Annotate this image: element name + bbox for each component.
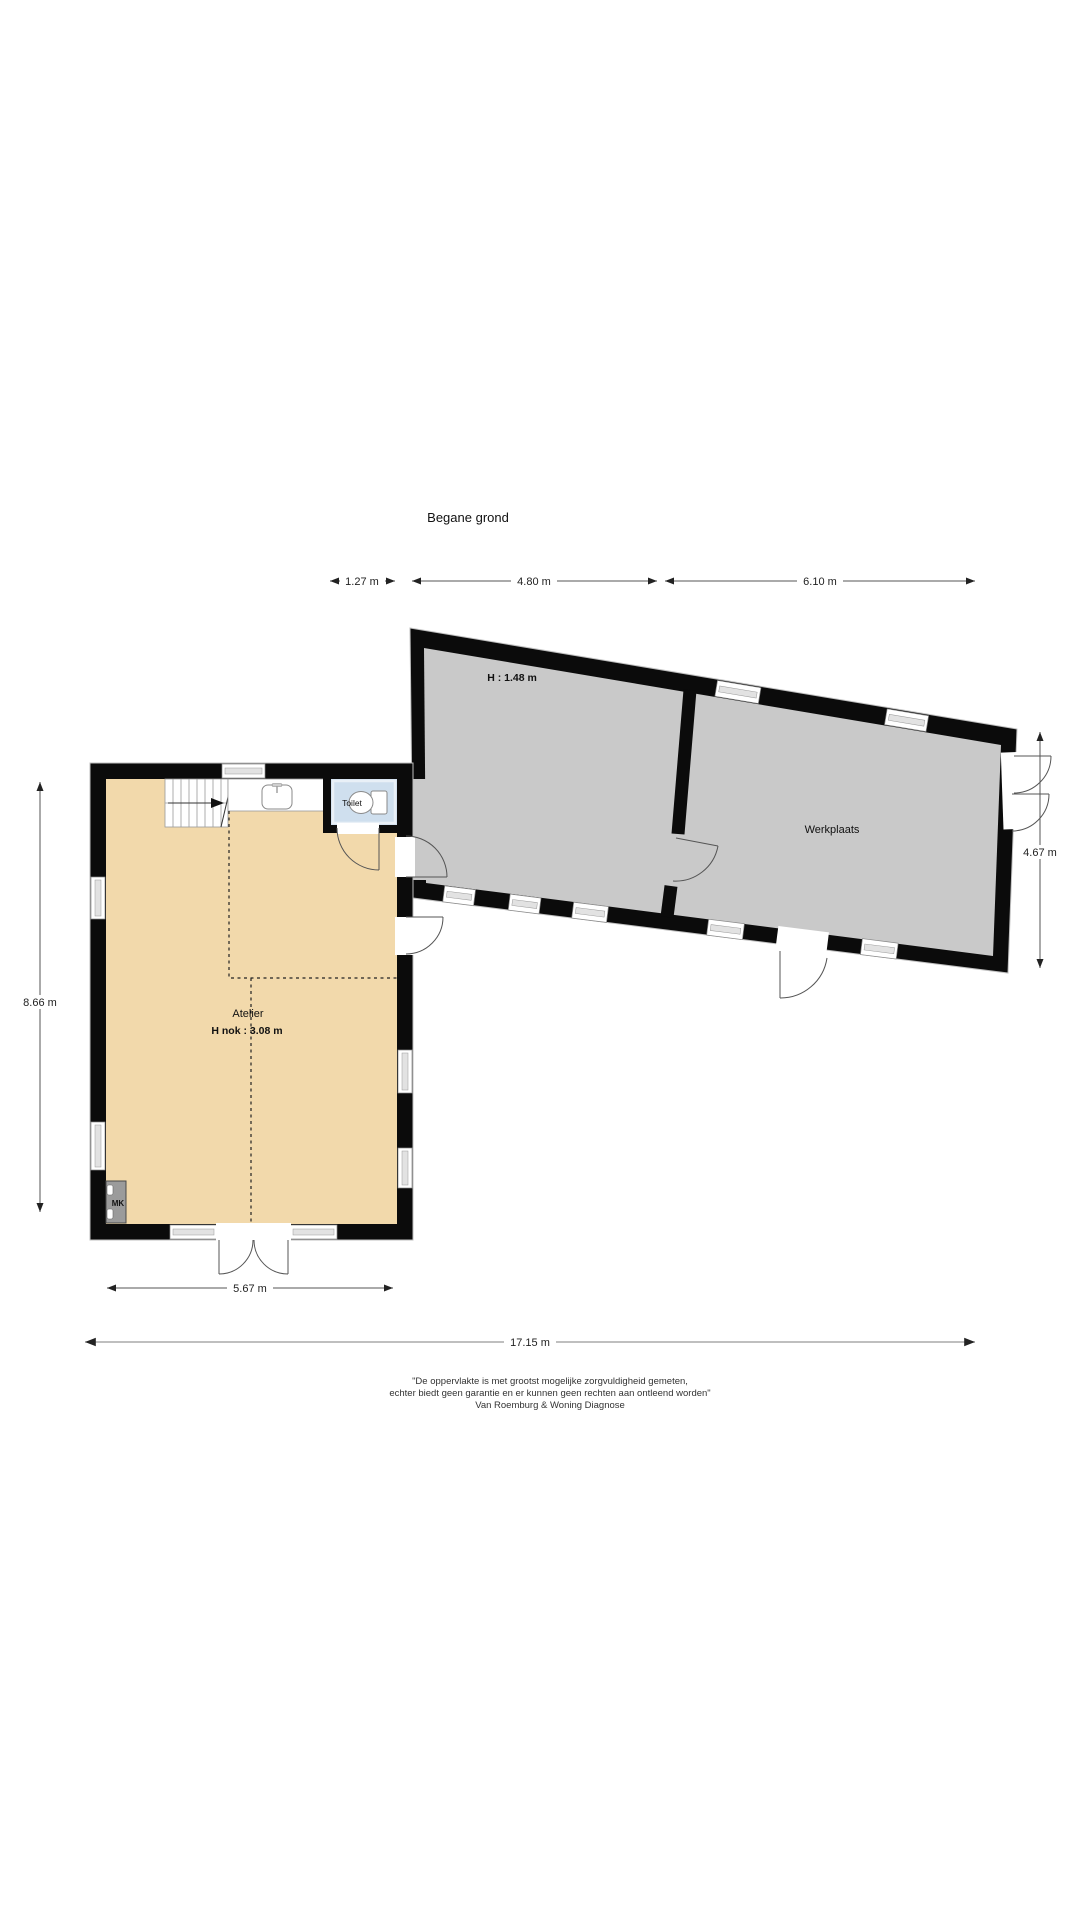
wing-building: H : 1.48 m Werkplaats xyxy=(410,628,1051,998)
meter-closet: MK xyxy=(106,1181,126,1223)
dim-right: 4.67 m xyxy=(1023,847,1057,859)
atelier-height-label: H nok : 3.08 m xyxy=(211,1025,282,1037)
room-label-atelier: Atelier xyxy=(232,1008,264,1020)
window xyxy=(91,1122,105,1170)
dimension-left: 8.66 m xyxy=(16,782,64,1212)
door-arc xyxy=(254,1240,288,1274)
dim-top-3: 6.10 m xyxy=(803,576,837,588)
door-opening xyxy=(395,917,415,955)
atelier-building: Toilet MK xyxy=(90,763,447,1274)
room-label-werkplaats: Werkplaats xyxy=(805,824,860,836)
floor-plan-page: Begane grond 1.27 m 4.80 m 6.10 m 8.66 m… xyxy=(0,0,1080,1920)
dim-left: 8.66 m xyxy=(23,997,57,1009)
meter-icon xyxy=(107,1185,113,1195)
dim-top-2: 4.80 m xyxy=(517,576,551,588)
sink-counter xyxy=(228,779,325,811)
window xyxy=(508,894,541,914)
wing-right-door xyxy=(1001,752,1022,830)
room-atelier-floor xyxy=(106,779,397,1224)
room-toilet: Toilet xyxy=(323,777,397,834)
disclaimer-line-2: echter biedt geen garantie en er kunnen … xyxy=(389,1388,710,1399)
stairs xyxy=(165,779,232,827)
door-arc xyxy=(780,958,827,998)
meter-icon xyxy=(107,1209,113,1219)
disclaimer-line-1: "De oppervlakte is met grootst mogelijke… xyxy=(412,1376,688,1387)
disclaimer: "De oppervlakte is met grootst mogelijke… xyxy=(389,1376,710,1411)
door-opening xyxy=(216,1223,291,1241)
window xyxy=(398,1050,412,1093)
dim-bottom-inner: 5.67 m xyxy=(233,1283,267,1295)
door-opening xyxy=(395,837,415,877)
room-label-toilet: Toilet xyxy=(342,798,362,808)
window xyxy=(91,877,105,919)
dimension-right: 4.67 m xyxy=(1016,732,1064,968)
window xyxy=(443,886,476,906)
dimension-top: 1.27 m 4.80 m 6.10 m xyxy=(330,574,975,588)
door-opening xyxy=(337,823,379,834)
floor-plan-canvas: Begane grond 1.27 m 4.80 m 6.10 m 8.66 m… xyxy=(0,0,1080,1920)
dim-top-1: 1.27 m xyxy=(345,576,379,588)
attic-height-label: H : 1.48 m xyxy=(487,672,537,684)
dimension-bottom-total: 17.15 m xyxy=(85,1335,975,1349)
disclaimer-line-3: Van Roemburg & Woning Diagnose xyxy=(475,1400,625,1411)
window xyxy=(290,1225,337,1239)
room-label-mk: MK xyxy=(112,1199,125,1208)
door-arc xyxy=(219,1240,253,1274)
window xyxy=(170,1225,217,1239)
window xyxy=(222,764,265,778)
door-opening xyxy=(1001,752,1022,830)
dimension-bottom-inner: 5.67 m xyxy=(107,1281,393,1295)
page-title: Begane grond xyxy=(427,510,509,525)
window xyxy=(398,1148,412,1188)
dim-bottom-total: 17.15 m xyxy=(510,1337,550,1349)
